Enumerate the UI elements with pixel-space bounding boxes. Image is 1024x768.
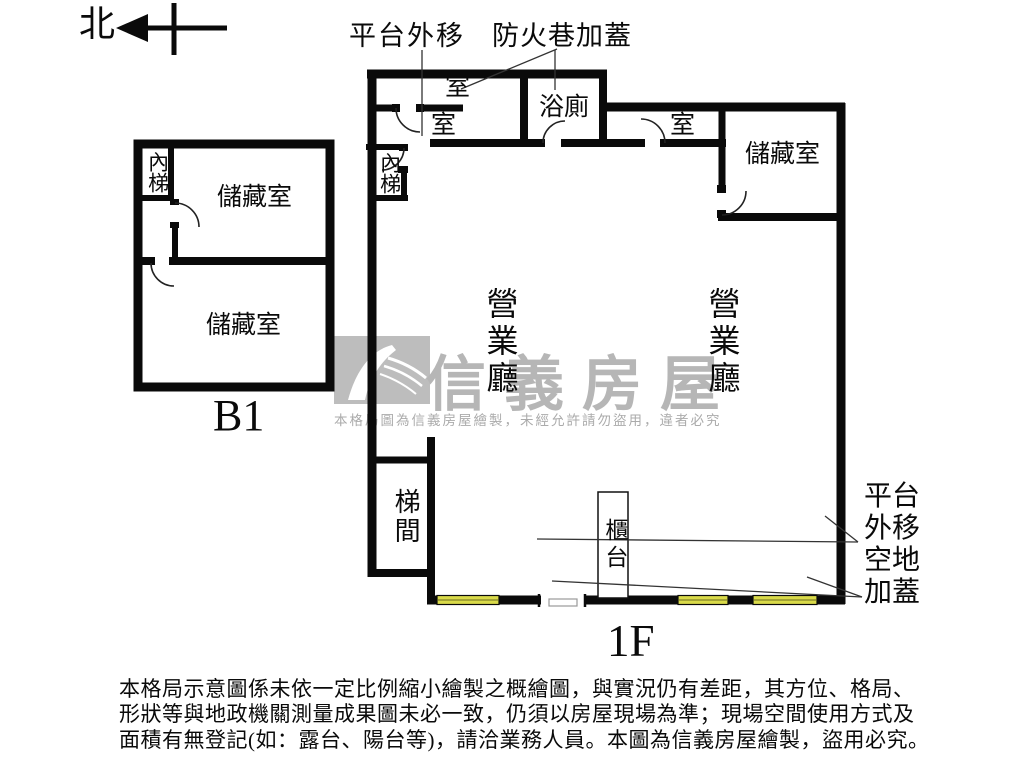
f1-door-arcs	[382, 108, 746, 215]
annotation-leader-lines	[422, 49, 862, 597]
b1-walls	[135, 144, 330, 387]
north-compass	[116, 3, 227, 55]
counter-outline	[598, 492, 628, 598]
floor-plan-page: 信義房屋 本格局圖為信義房屋繪製，未經允許請勿盜用，違者必究	[0, 0, 1024, 768]
entrance-opening	[539, 594, 585, 607]
floor-plan-drawing	[0, 0, 1024, 768]
